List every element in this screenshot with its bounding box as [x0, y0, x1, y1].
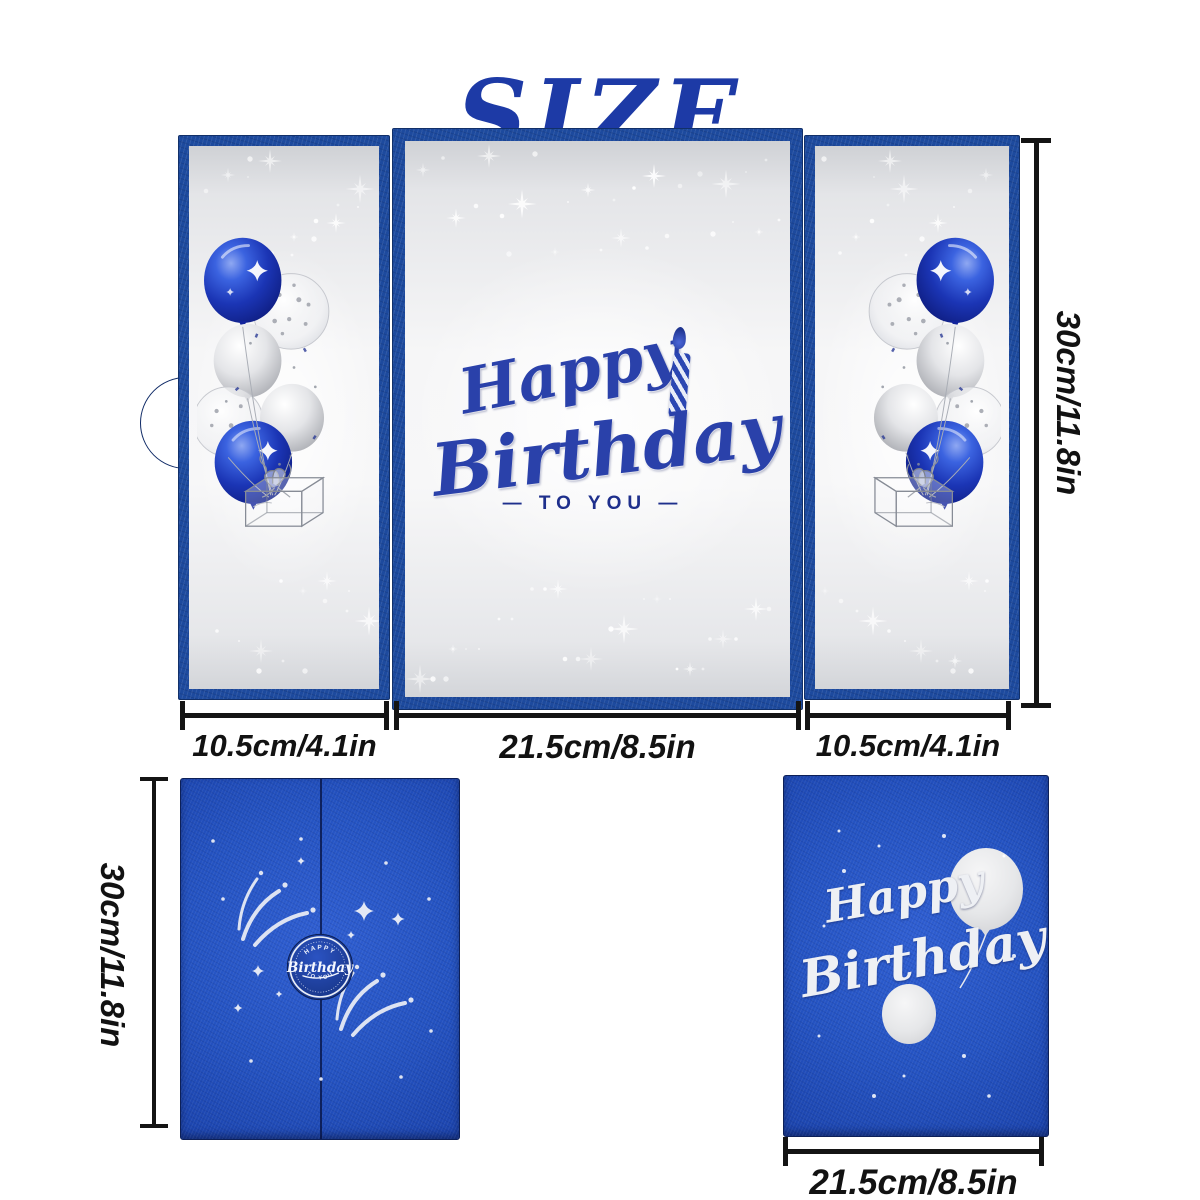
dimension-end-tick: [394, 701, 399, 730]
dimension-label: 30cm/11.8in: [93, 845, 131, 1065]
dimension-end-tick: [805, 701, 810, 730]
dimension-end-tick: [180, 701, 185, 730]
dimension-line: [783, 1149, 1044, 1154]
closed-card-back: Happy Birthday: [783, 775, 1049, 1137]
dimension-label: 21.5cm/8.5in: [783, 1163, 1044, 1200]
open-card-left-panel: [178, 135, 390, 700]
closed-card-front: HAPPY Birthday TO YOU: [180, 778, 460, 1140]
balloon-bouquet-left-graphic: [197, 232, 362, 532]
dimension-line: [394, 713, 801, 718]
dimension-end-cap: [1021, 138, 1051, 143]
birthday-badge-seal: HAPPY Birthday TO YOU: [286, 933, 354, 1001]
open-card-right-panel: [804, 135, 1020, 700]
balloon-bouquet-right-graphic: [836, 232, 1001, 532]
dimension-end-tick: [783, 1137, 788, 1166]
badge-script-text: Birthday: [286, 960, 354, 976]
right-panel-paper: [815, 146, 1009, 689]
dimension-line: [1034, 138, 1039, 708]
open-card-middle-panel: Happy Birthday — TO YOU —: [392, 128, 803, 710]
dimension-label: 21.5cm/8.5in: [394, 728, 801, 766]
left-panel-paper: [189, 146, 379, 689]
dimension-end-tick: [1006, 701, 1011, 730]
dimension-end-tick: [384, 701, 389, 730]
dimension-line: [805, 713, 1011, 718]
size-chart-page: SIZE Happy Birthday — TO YOU —: [0, 0, 1200, 1200]
dimension-label: 10.5cm/4.1in: [180, 728, 389, 764]
dimension-end-cap: [140, 1124, 168, 1128]
dimension-end-cap: [140, 777, 168, 781]
dimension-label: 10.5cm/4.1in: [805, 728, 1011, 764]
middle-panel-paper: Happy Birthday — TO YOU —: [405, 141, 790, 697]
artwork-subtitle: — TO YOU —: [443, 493, 743, 515]
dimension-line: [180, 713, 389, 718]
dimension-end-cap: [1021, 703, 1051, 708]
dimension-end-tick: [1039, 1137, 1044, 1166]
dimension-line: [152, 777, 156, 1128]
dimension-end-tick: [796, 701, 801, 730]
dimension-label: 30cm/11.8in: [1049, 283, 1087, 523]
